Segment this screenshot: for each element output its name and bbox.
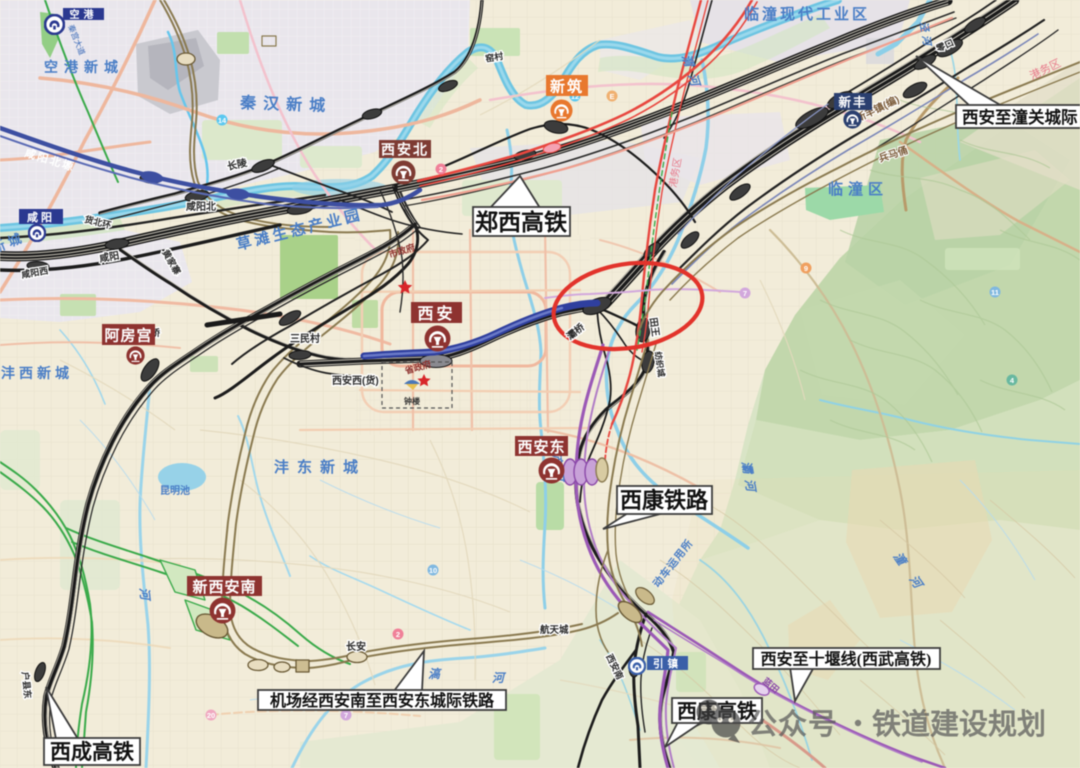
svg-text:阿房宫: 阿房宫 (104, 327, 152, 345)
svg-text:西安至潼关城际: 西安至潼关城际 (962, 107, 1078, 127)
svg-text:咸阳: 咸阳 (27, 210, 55, 224)
svg-text:西康铁路: 西康铁路 (620, 488, 709, 513)
svg-text:新丰: 新丰 (838, 95, 867, 110)
svg-text:西成高铁: 西成高铁 (50, 740, 134, 764)
svg-text:2: 2 (396, 630, 400, 639)
svg-text:公众号: 公众号 (748, 708, 838, 741)
svg-text:14: 14 (218, 116, 227, 125)
svg-text:新筑: 新筑 (550, 78, 584, 96)
svg-text:2: 2 (439, 165, 443, 174)
svg-text:铁道建设规划: 铁道建设规划 (872, 708, 1046, 741)
svg-text:长安: 长安 (346, 640, 366, 653)
svg-text:空港新城: 空港新城 (44, 59, 124, 75)
svg-text:沣西新城: 沣西新城 (1, 365, 73, 381)
svg-text:引镇: 引镇 (653, 657, 682, 670)
svg-text:西安北: 西安北 (381, 142, 429, 159)
svg-text:西安: 西安 (417, 304, 455, 323)
svg-text:西安至十堰线(西武高铁): 西安至十堰线(西武高铁) (761, 650, 932, 669)
svg-text:临潼区: 临潼区 (828, 180, 888, 198)
svg-text:郑西高铁: 郑西高铁 (475, 209, 567, 235)
svg-text:西安东: 西安东 (517, 438, 565, 456)
svg-text:9: 9 (804, 264, 808, 273)
svg-text:钟楼: 钟楼 (404, 396, 420, 406)
svg-text:航天城: 航天城 (540, 624, 569, 636)
svg-text:三民村: 三民村 (290, 332, 320, 345)
svg-text:机场经西安南至西安东城际铁路: 机场经西安南至西安东城际铁路 (270, 691, 495, 710)
svg-text:昆明池: 昆明池 (160, 484, 190, 497)
svg-text:沣东新城: 沣东新城 (274, 458, 366, 476)
svg-text:7: 7 (344, 711, 348, 720)
svg-text:11: 11 (991, 288, 999, 297)
svg-text:E: E (609, 92, 614, 101)
svg-text:新西安南: 新西安南 (192, 578, 256, 596)
svg-text:7: 7 (743, 289, 747, 298)
svg-text:西安西(货): 西安西(货) (332, 374, 379, 387)
svg-text:滈: 滈 (428, 667, 442, 681)
svg-text:空港: 空港 (70, 8, 98, 21)
svg-text:河: 河 (492, 671, 507, 685)
svg-text:10: 10 (429, 566, 437, 575)
svg-text:20: 20 (207, 711, 215, 720)
svg-text:咸阳北: 咸阳北 (186, 200, 216, 213)
svg-text:河: 河 (137, 587, 153, 605)
svg-text:临潼现代工业区: 临潼现代工业区 (744, 5, 870, 23)
